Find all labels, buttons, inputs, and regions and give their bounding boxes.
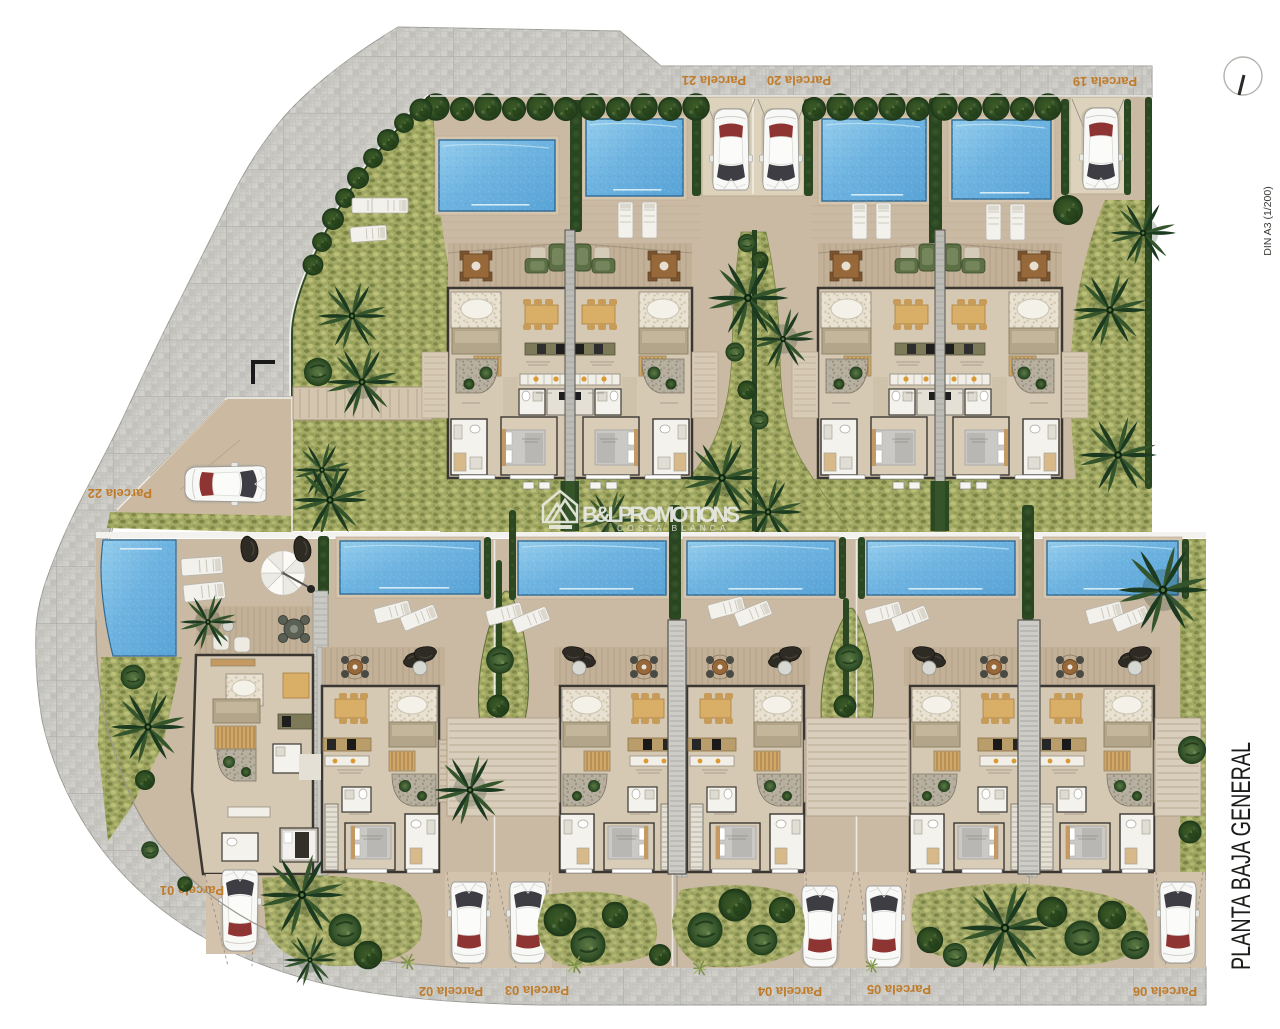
svg-text:Parcela 21: Parcela 21 [682, 73, 746, 88]
svg-text:Parcela 19: Parcela 19 [1073, 74, 1137, 89]
svg-text:DIN A3 (1/200): DIN A3 (1/200) [1262, 186, 1274, 255]
svg-text:Parcela 04: Parcela 04 [757, 984, 822, 999]
svg-text:Parcela 06: Parcela 06 [1133, 984, 1197, 999]
svg-text:Parcela 05: Parcela 05 [867, 982, 931, 997]
svg-text:Parcela 22: Parcela 22 [88, 486, 152, 501]
svg-text:PLANTA BAJA GENERAL: PLANTA BAJA GENERAL [1226, 742, 1256, 970]
svg-text:COSTA BLANCA: COSTA BLANCA [617, 523, 730, 533]
svg-text:Parcela 02: Parcela 02 [419, 984, 483, 999]
svg-text:Parcela 03: Parcela 03 [505, 983, 569, 998]
svg-text:Parcela 20: Parcela 20 [767, 73, 831, 88]
